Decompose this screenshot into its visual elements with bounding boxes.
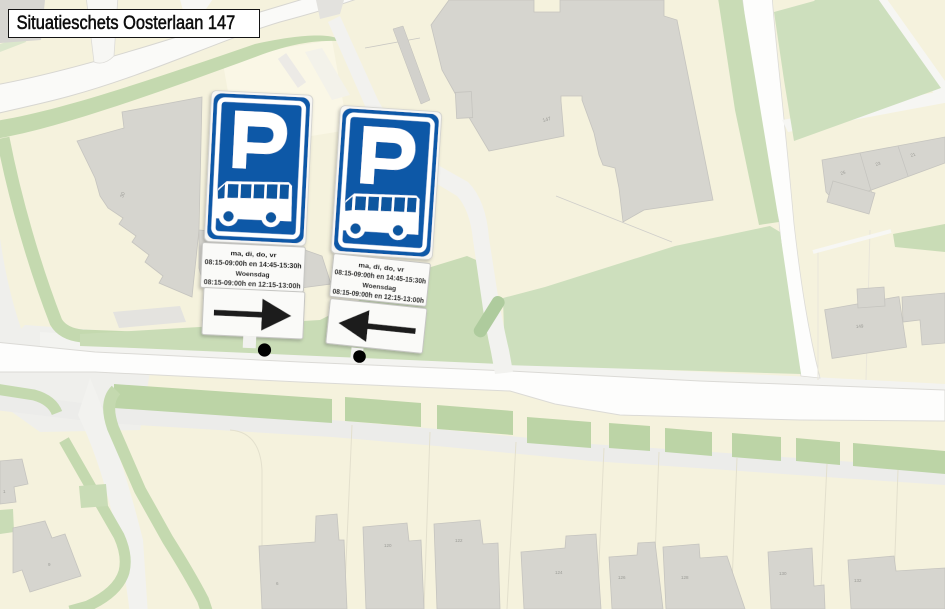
- svg-text:149: 149: [856, 323, 864, 329]
- svg-text:126: 126: [618, 575, 626, 580]
- svg-text:124: 124: [555, 570, 563, 575]
- svg-text:122: 122: [455, 538, 463, 543]
- svg-text:132: 132: [854, 578, 862, 583]
- svg-text:120: 120: [384, 543, 392, 548]
- svg-text:128: 128: [681, 575, 689, 580]
- svg-text:130: 130: [779, 571, 787, 576]
